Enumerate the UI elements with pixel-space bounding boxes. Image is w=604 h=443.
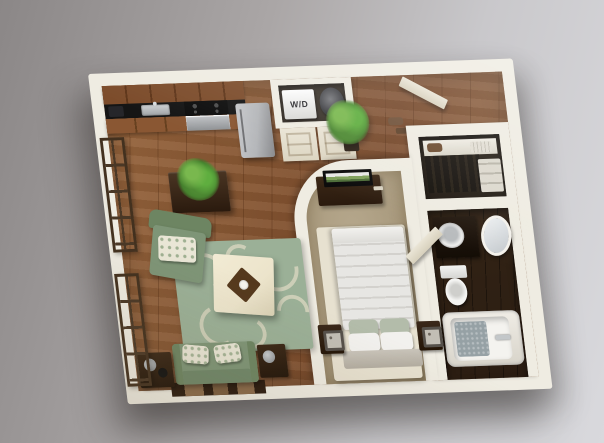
cooktop — [184, 100, 229, 116]
tray-cup — [239, 280, 249, 290]
backdrop: W/D — [0, 0, 604, 443]
bath-mat — [454, 321, 490, 357]
tv-remote — [373, 186, 383, 190]
side-table-right — [257, 344, 289, 378]
nightstand-right — [416, 321, 443, 351]
storage-baskets — [478, 158, 505, 192]
closet-ribbed-box — [470, 141, 492, 152]
toaster — [108, 106, 124, 117]
square-lamp-left — [323, 330, 345, 351]
washer-dryer-unit: W/D — [282, 89, 317, 119]
washer-dryer-label: W/D — [290, 99, 309, 109]
square-lamp-right — [422, 326, 444, 347]
toilet-tank — [440, 265, 468, 279]
bed-fold — [331, 226, 404, 243]
nightstand-left — [317, 324, 344, 354]
closet-clutch — [427, 143, 443, 152]
headboard — [342, 349, 423, 369]
apartment-floorplan: W/D — [88, 58, 553, 404]
sofa-pillow-right — [213, 342, 243, 364]
speaker-disc — [158, 368, 169, 378]
hanging-clothes — [424, 154, 483, 193]
armchair — [144, 208, 212, 290]
armchair-pillow — [158, 235, 196, 263]
tv-screen — [326, 172, 370, 182]
round-lamp-right — [262, 350, 276, 363]
sofa-back — [182, 369, 251, 385]
kitchen-sink — [141, 104, 170, 116]
oven — [186, 115, 231, 131]
tub-faucet — [495, 335, 511, 340]
ottoman-coffee-table — [213, 254, 275, 316]
closet-door-left — [280, 127, 320, 161]
refrigerator — [235, 102, 275, 158]
sofa-pillow-left — [182, 344, 209, 365]
shoes — [388, 117, 404, 125]
